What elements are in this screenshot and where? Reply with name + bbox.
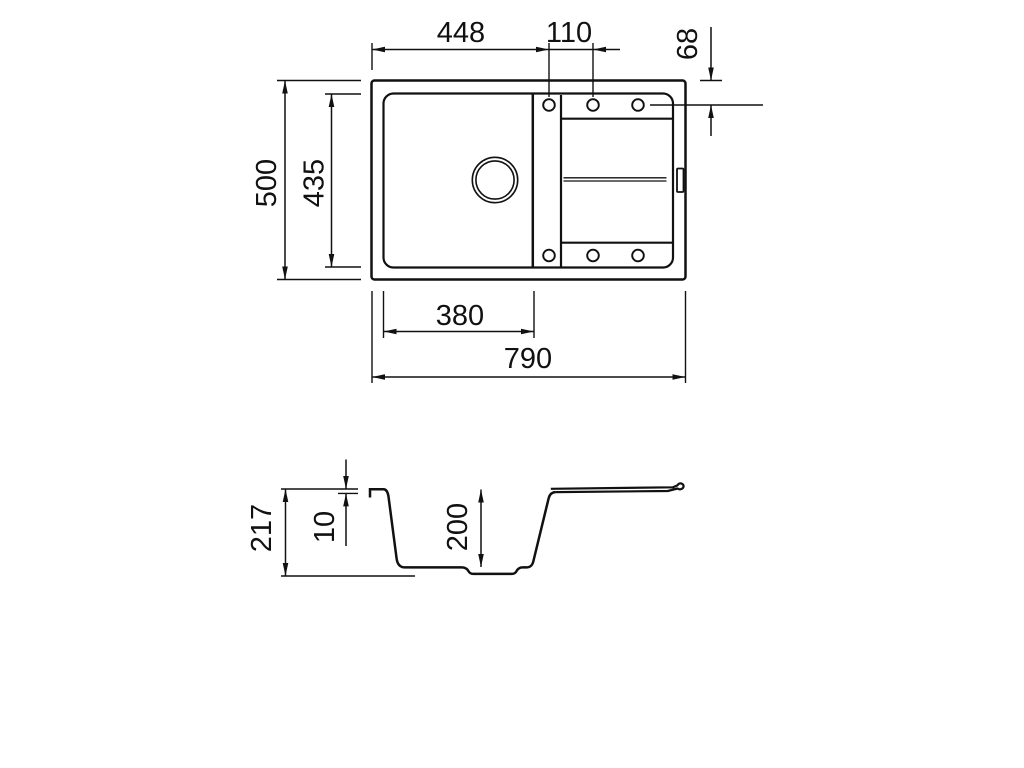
- side-view: 217 10 200: [246, 460, 684, 577]
- drain-hole: [472, 157, 517, 202]
- dim-label: 217: [246, 504, 278, 552]
- tap-hole: [543, 99, 555, 111]
- dim-790: 790: [372, 291, 686, 383]
- arrowhead-up: [343, 493, 349, 506]
- dim-label: 448: [437, 17, 485, 49]
- drain-outer-circle: [472, 157, 517, 202]
- dim-label: 10: [309, 511, 341, 543]
- dim-label: 380: [436, 300, 484, 332]
- dim-435: 435: [299, 94, 362, 267]
- dim-200: 200: [442, 490, 484, 568]
- arrowhead-right: [521, 329, 534, 335]
- technical-drawing-page: 448 110 68 500: [0, 0, 1024, 768]
- left-rim-profile: [370, 489, 384, 497]
- tap-hole: [543, 250, 555, 262]
- dim-label: 110: [546, 17, 592, 49]
- arrowhead-down: [343, 476, 349, 489]
- dim-label: 790: [504, 343, 552, 375]
- arrowhead-up: [283, 489, 289, 502]
- sink-technical-drawing: 448 110 68 500: [0, 0, 1024, 768]
- dim-label: 200: [442, 503, 474, 551]
- dim-380: 380: [384, 291, 535, 338]
- arrowhead-up: [282, 81, 288, 94]
- arrowhead-up: [478, 490, 484, 503]
- arrowhead-up: [708, 105, 714, 118]
- dim-10: 10: [309, 460, 358, 547]
- drain-inner-circle: [476, 161, 514, 199]
- tap-hole: [632, 99, 644, 111]
- arrowhead-left: [372, 47, 385, 53]
- dim-110: 110: [546, 17, 606, 97]
- arrowhead-up: [329, 94, 335, 107]
- dim-label: 435: [299, 159, 331, 207]
- overflow-slot: [677, 169, 684, 193]
- dim-label: 68: [672, 28, 704, 60]
- arrowhead-left: [372, 374, 385, 380]
- dim-label: 500: [251, 159, 283, 207]
- arrowhead-down: [329, 254, 335, 267]
- arrowhead-down: [283, 563, 289, 576]
- tap-holes: [543, 99, 644, 261]
- arrowhead-down: [708, 68, 714, 81]
- arrowhead-down: [478, 554, 484, 567]
- arrowhead-down: [282, 267, 288, 280]
- drainboard-profile: [551, 483, 684, 492]
- arrowhead-left: [384, 329, 397, 335]
- tap-hole: [587, 250, 599, 262]
- arrowhead-left: [593, 47, 606, 53]
- arrowhead-right: [673, 374, 686, 380]
- sink-profile: [370, 483, 684, 574]
- top-view: 448 110 68 500: [251, 17, 763, 383]
- tap-hole: [587, 99, 599, 111]
- tap-hole: [632, 250, 644, 262]
